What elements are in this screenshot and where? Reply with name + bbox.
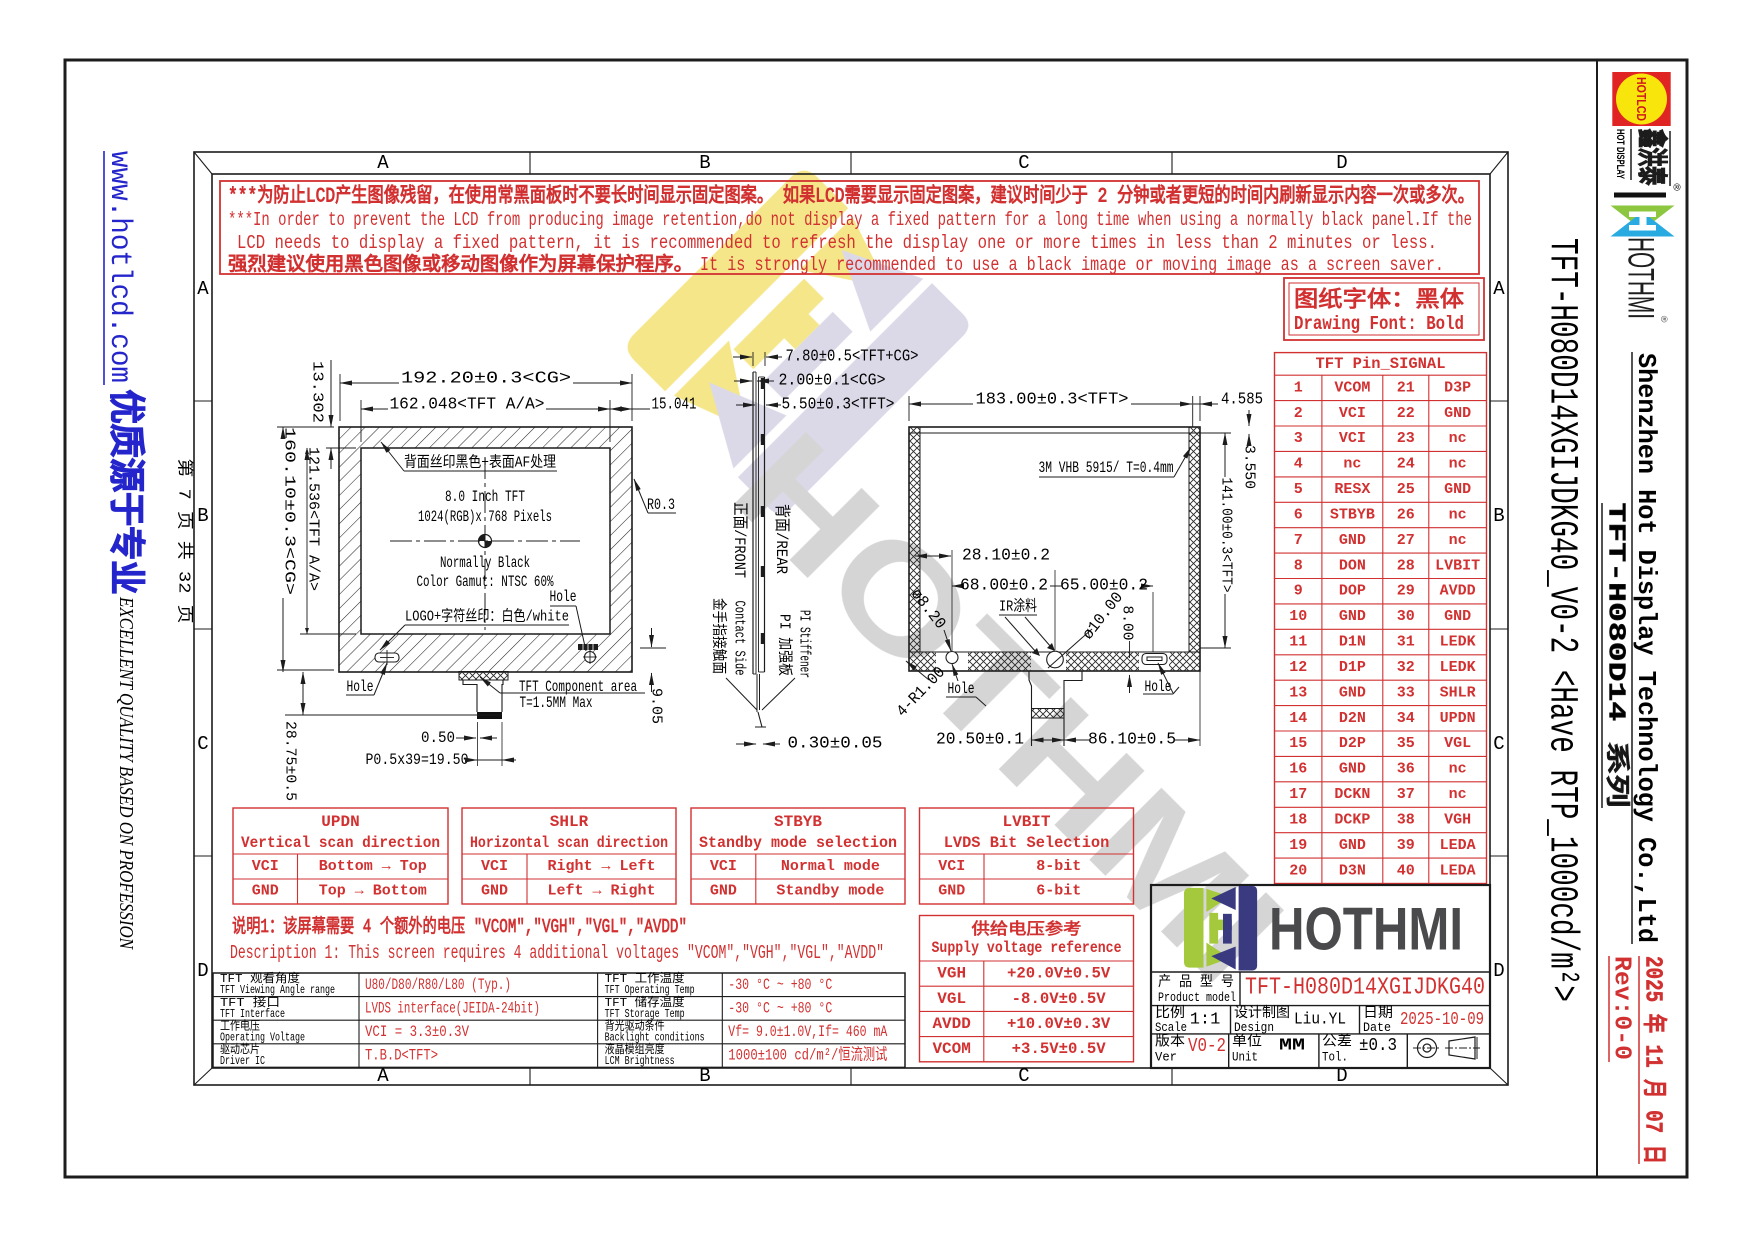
svg-text:Tol.: Tol. [1322, 1050, 1348, 1065]
svg-text:D: D [197, 960, 208, 982]
svg-text:1024(RGB)x 768 Pixels: 1024(RGB)x 768 Pixels [418, 508, 552, 526]
svg-text:Standby mode selection: Standby mode selection [699, 834, 897, 852]
svg-text:TFT Pin_SIGNAL: TFT Pin_SIGNAL [1316, 355, 1446, 373]
svg-text:It is strongly recommended to: It is strongly recommended to use a blac… [700, 254, 1444, 276]
svg-text:23: 23 [1397, 430, 1415, 447]
svg-text:27: 27 [1397, 532, 1415, 549]
svg-text:LOGO+字符丝印：白色/white: LOGO+字符丝印：白色/white [405, 608, 569, 626]
svg-text:TFT-H080D14XGIJDKG40: TFT-H080D14XGIJDKG40 [1245, 975, 1485, 1002]
svg-text:9.05: 9.05 [648, 688, 665, 724]
svg-text:28: 28 [1397, 557, 1415, 574]
svg-text:LVDS Bit Selection: LVDS Bit Selection [944, 834, 1110, 852]
svg-text:Shenzhen Hot Display Technolog: Shenzhen Hot Display Technology Co.,Ltd [1631, 353, 1661, 943]
svg-text:C: C [197, 733, 208, 755]
svg-text:UPDN: UPDN [321, 813, 359, 831]
svg-text:10: 10 [1289, 608, 1307, 625]
svg-text:单位: 单位 [1232, 1034, 1262, 1051]
svg-text:VCOM: VCOM [932, 1040, 970, 1058]
svg-text:13: 13 [1289, 684, 1307, 701]
svg-text:STBYB: STBYB [1330, 506, 1375, 523]
svg-text:VCI: VCI [1339, 405, 1366, 422]
svg-text:C: C [1018, 1065, 1029, 1087]
svg-text:160.10±0.3<CG>: 160.10±0.3<CG> [281, 427, 298, 595]
svg-text:D2N: D2N [1339, 710, 1366, 727]
svg-text:1: 1 [1294, 379, 1303, 396]
svg-text:Normally Black: Normally Black [440, 554, 530, 572]
svg-text:4: 4 [1294, 456, 1303, 473]
svg-text:A: A [197, 278, 209, 300]
svg-text:***In order to prevent the LCD: ***In order to prevent the LCD from prod… [228, 209, 1472, 231]
svg-text:D3N: D3N [1339, 862, 1366, 879]
svg-text:D3P: D3P [1444, 379, 1471, 396]
svg-text:背面丝印黑色+表面AF处理: 背面丝印黑色+表面AF处理 [404, 454, 556, 472]
svg-text:14: 14 [1289, 710, 1307, 727]
svg-text:3M VHB 5915/ T=0.4mm: 3M VHB 5915/ T=0.4mm [1039, 459, 1174, 477]
svg-text:®: ® [1671, 183, 1682, 191]
svg-text:VGH: VGH [1444, 811, 1471, 828]
svg-text:28.75±0.5: 28.75±0.5 [282, 721, 299, 801]
svg-text:C: C [1018, 152, 1029, 174]
svg-text:VCOM: VCOM [1334, 379, 1370, 396]
svg-text:Scale: Scale [1155, 1020, 1187, 1035]
svg-text:强烈建议使用黑色图像或移动图像作为屏幕保护程序。: 强烈建议使用黑色图像或移动图像作为屏幕保护程序。 [228, 253, 693, 276]
svg-text:背面/REAR: 背面/REAR [772, 504, 791, 574]
svg-text:GND: GND [481, 883, 508, 900]
svg-text:DON: DON [1339, 557, 1366, 574]
svg-text:Drawing Font: Bold: Drawing Font: Bold [1294, 313, 1464, 335]
svg-text:65.00±0.2: 65.00±0.2 [1060, 577, 1148, 596]
svg-text:Ver: Ver [1155, 1050, 1177, 1065]
svg-text:LVDS interface(JEIDA-24bit): LVDS interface(JEIDA-24bit) [365, 999, 540, 1017]
svg-text:HOTHMI: HOTHMI [1269, 896, 1463, 963]
svg-text:版本: 版本 [1155, 1034, 1185, 1051]
svg-text:第 7 页 共 32 页: 第 7 页 共 32 页 [174, 459, 195, 624]
svg-text:-30 °C ~ +80 °C: -30 °C ~ +80 °C [728, 999, 832, 1017]
svg-text:TFT-H080D14XGIJDKG40_V0-2 <Hav: TFT-H080D14XGIJDKG40_V0-2 <Have RTP_1000… [1539, 238, 1584, 1002]
svg-text:金手指接触面: 金手指接触面 [710, 598, 728, 674]
svg-text:GND: GND [1339, 761, 1366, 778]
svg-text:Liu.YL: Liu.YL [1294, 1011, 1346, 1030]
svg-text:162.048<TFT A/A>: 162.048<TFT A/A> [390, 396, 545, 415]
svg-text:Vf= 9.0±1.0V,If= 460 mA: Vf= 9.0±1.0V,If= 460 mA [728, 1023, 887, 1041]
svg-text:2025-10-09: 2025-10-09 [1400, 1010, 1484, 1030]
svg-text:SHLR: SHLR [550, 813, 589, 831]
svg-text:Driver IC: Driver IC [220, 1054, 265, 1068]
svg-text:T.B.D<TFT>: T.B.D<TFT> [365, 1047, 438, 1065]
svg-text:nc: nc [1449, 506, 1467, 523]
svg-text:33: 33 [1397, 684, 1415, 701]
svg-text:EXCELLENT QUALITY BASED ON PRO: EXCELLENT QUALITY BASED ON PROFESSION [115, 596, 137, 950]
svg-text:***为防止LCD产生图像残留，在使用常黑面板时不要长时间显: ***为防止LCD产生图像残留，在使用常黑面板时不要长时间显示固定图案。 如果L… [228, 184, 1474, 209]
svg-text:B: B [699, 152, 710, 174]
svg-text:35: 35 [1397, 735, 1415, 752]
svg-text:GND: GND [1339, 608, 1366, 625]
svg-text:22: 22 [1397, 405, 1415, 422]
svg-text:LEDK: LEDK [1440, 634, 1476, 651]
svg-text:121.536<TFT A/A>: 121.536<TFT A/A> [305, 447, 322, 591]
svg-text:D1N: D1N [1339, 634, 1366, 651]
svg-text:1:1: 1:1 [1190, 1011, 1221, 1030]
svg-text:29: 29 [1397, 583, 1415, 600]
svg-text:STBYB: STBYB [774, 813, 822, 831]
svg-text:40: 40 [1397, 862, 1415, 879]
svg-text:VGL: VGL [937, 990, 966, 1008]
svg-text:GND: GND [938, 883, 965, 900]
svg-text:VCI = 3.3±0.3V: VCI = 3.3±0.3V [365, 1023, 469, 1041]
svg-text:Left → Right: Left → Right [547, 883, 655, 900]
svg-text:13.302: 13.302 [309, 361, 326, 423]
svg-text:19: 19 [1289, 837, 1307, 854]
svg-text:www.hotlcd.com: www.hotlcd.com [102, 151, 136, 383]
svg-text:B: B [1493, 505, 1504, 527]
svg-text:31: 31 [1397, 634, 1415, 651]
svg-text:8-bit: 8-bit [1036, 858, 1081, 875]
svg-text:1000±100 cd/m²/恒流测试: 1000±100 cd/m²/恒流测试 [728, 1046, 887, 1065]
svg-text:-8.0V±0.5V: -8.0V±0.5V [1012, 990, 1106, 1008]
svg-text:LCM Brightness: LCM Brightness [605, 1054, 675, 1068]
svg-text:Color Gamut: NTSC 60%: Color Gamut: NTSC 60% [417, 573, 554, 591]
svg-text:15.041: 15.041 [652, 396, 697, 415]
svg-text:®: ® [1659, 316, 1669, 323]
svg-text:LVBIT: LVBIT [1435, 557, 1480, 574]
svg-text:LEDA: LEDA [1440, 862, 1476, 879]
svg-text:Horizontal scan direction: Horizontal scan direction [470, 834, 668, 852]
svg-text:nc: nc [1449, 532, 1467, 549]
svg-text:26: 26 [1397, 506, 1415, 523]
svg-text:86.10±0.5: 86.10±0.5 [1088, 731, 1176, 750]
svg-text:Date: Date [1363, 1020, 1391, 1035]
svg-text:+20.0V±0.5V: +20.0V±0.5V [1007, 965, 1111, 983]
svg-text:图纸字体：黑体: 图纸字体：黑体 [1294, 288, 1464, 314]
svg-text:4.585: 4.585 [1221, 391, 1263, 410]
svg-text:34: 34 [1397, 710, 1415, 727]
svg-text:39: 39 [1397, 837, 1415, 854]
svg-text:VCI: VCI [1339, 430, 1366, 447]
svg-text:20: 20 [1289, 862, 1307, 879]
svg-text:LEDA: LEDA [1440, 837, 1476, 854]
svg-text:0.30±0.05: 0.30±0.05 [788, 735, 883, 754]
svg-text:6: 6 [1294, 506, 1303, 523]
svg-text:公差: 公差 [1322, 1034, 1352, 1051]
svg-text:8: 8 [1294, 557, 1303, 574]
svg-text:LVBIT: LVBIT [1002, 813, 1050, 831]
svg-text:36: 36 [1397, 761, 1415, 778]
svg-text:GND: GND [1339, 532, 1366, 549]
svg-text:25: 25 [1397, 481, 1415, 498]
svg-text:GND: GND [1339, 684, 1366, 701]
svg-text:21: 21 [1397, 379, 1415, 396]
svg-text:nc: nc [1449, 761, 1467, 778]
svg-text:VCI: VCI [938, 858, 965, 875]
svg-text:24: 24 [1397, 456, 1415, 473]
svg-text:-30 °C ~ +80 °C: -30 °C ~ +80 °C [728, 976, 832, 994]
svg-text:Standby mode: Standby mode [776, 883, 884, 900]
svg-text:D1P: D1P [1339, 659, 1366, 676]
svg-text:优质源于专业: 优质源于专业 [107, 390, 148, 595]
svg-text:GND: GND [1444, 481, 1471, 498]
svg-text:17: 17 [1289, 786, 1307, 803]
svg-text:12: 12 [1289, 659, 1307, 676]
svg-text:AVDD: AVDD [932, 1015, 970, 1033]
svg-text:IR涂料: IR涂料 [999, 598, 1037, 616]
svg-text:+10.0V±0.3V: +10.0V±0.3V [1007, 1015, 1111, 1033]
svg-text:说明1：该屏幕需要 4 个额外的电压 "VCOM","VGH: 说明1：该屏幕需要 4 个额外的电压 "VCOM","VGH","VGL","A… [232, 915, 687, 938]
svg-text:0.50: 0.50 [421, 729, 455, 747]
svg-text:AVDD: AVDD [1440, 583, 1476, 600]
svg-text:B: B [197, 505, 208, 527]
svg-text:C: C [1493, 733, 1504, 755]
svg-text:5.50±0.3<TFT>: 5.50±0.3<TFT> [782, 396, 895, 415]
svg-text:TFT-H080D14 系列: TFT-H080D14 系列 [1602, 503, 1631, 808]
svg-text:产 品 型 号: 产 品 型 号 [1158, 974, 1234, 991]
svg-text:9: 9 [1294, 583, 1303, 600]
svg-text:DCKN: DCKN [1334, 786, 1370, 803]
svg-text:Hole: Hole [948, 680, 975, 698]
svg-text:D: D [1336, 152, 1347, 174]
svg-text:RESX: RESX [1334, 481, 1370, 498]
svg-text:7.80±0.5<TFT+CG>: 7.80±0.5<TFT+CG> [786, 348, 919, 367]
svg-text:37: 37 [1397, 786, 1415, 803]
svg-text:2025 年 11 月 07 日: 2025 年 11 月 07 日 [1639, 956, 1669, 1164]
svg-text:nc: nc [1343, 456, 1361, 473]
svg-text:3: 3 [1294, 430, 1303, 447]
svg-text:Hole: Hole [1145, 678, 1172, 696]
svg-text:2.00±0.1<CG>: 2.00±0.1<CG> [779, 372, 886, 391]
svg-text:D2P: D2P [1339, 735, 1366, 752]
svg-text:8.0 Inch TFT: 8.0 Inch TFT [445, 488, 525, 506]
svg-text:7: 7 [1294, 532, 1303, 549]
svg-text:UPDN: UPDN [1440, 710, 1476, 727]
svg-text:HOTHMI: HOTHMI [1621, 237, 1662, 319]
svg-text:Hole: Hole [347, 678, 374, 696]
svg-text:183.00±0.3<TFT>: 183.00±0.3<TFT> [976, 391, 1129, 410]
svg-text:Product model: Product model [1158, 990, 1236, 1005]
svg-text:正面/FRONT: 正面/FRONT [730, 502, 748, 578]
svg-text:VCI: VCI [710, 858, 737, 875]
svg-text:18: 18 [1289, 811, 1307, 828]
svg-text:A: A [377, 1065, 389, 1087]
svg-text:11: 11 [1289, 634, 1307, 651]
svg-text:VGL: VGL [1444, 735, 1471, 752]
svg-text:38: 38 [1397, 811, 1415, 828]
svg-text:Supply voltage reference: Supply voltage reference [932, 939, 1122, 957]
svg-text:MM: MM [1279, 1037, 1305, 1056]
svg-text:15: 15 [1289, 735, 1307, 752]
svg-text:LCD needs to display a fixed p: LCD needs to display a fixed pattern, it… [237, 232, 1437, 254]
svg-text:DOP: DOP [1339, 583, 1366, 600]
svg-text:GND: GND [252, 883, 279, 900]
svg-text:8.00: 8.00 [1119, 606, 1136, 641]
svg-text:Bottom → Top: Bottom → Top [319, 858, 427, 875]
svg-text:5: 5 [1294, 481, 1303, 498]
svg-text:VGH: VGH [937, 965, 966, 983]
svg-text:供给电压参考: 供给电压参考 [970, 919, 1081, 939]
svg-text:HOTLCD: HOTLCD [1634, 77, 1649, 121]
svg-text:nc: nc [1449, 430, 1467, 447]
svg-text:A: A [1493, 278, 1505, 300]
svg-text:HOT DISPLAY: HOT DISPLAY [1614, 129, 1626, 179]
svg-text:Top → Bottom: Top → Bottom [319, 883, 427, 900]
svg-text:2: 2 [1294, 405, 1303, 422]
svg-text:Design: Design [1234, 1020, 1274, 1035]
svg-text:GND: GND [1444, 608, 1471, 625]
svg-text:141.00±0.3<TFT>: 141.00±0.3<TFT> [1218, 478, 1235, 593]
svg-text:U80/D80/R80/L80 (Typ.): U80/D80/R80/L80 (Typ.) [365, 976, 511, 994]
svg-text:Hole: Hole [550, 588, 577, 606]
svg-text:Right → Left: Right → Left [547, 858, 655, 875]
svg-text:Vertical scan direction: Vertical scan direction [241, 834, 440, 852]
svg-text:P0.5x39=19.50: P0.5x39=19.50 [366, 751, 469, 769]
svg-text:VCI: VCI [481, 858, 508, 875]
svg-text:V0-2: V0-2 [1188, 1035, 1226, 1057]
svg-text:GND: GND [1444, 405, 1471, 422]
svg-text:D: D [1493, 960, 1504, 982]
svg-text:16: 16 [1289, 761, 1307, 778]
svg-text:±0.3: ±0.3 [1359, 1036, 1397, 1056]
svg-text:Description 1: This screen req: Description 1: This screen requires 4 ad… [230, 942, 884, 964]
svg-text:28.10±0.2: 28.10±0.2 [962, 547, 1050, 566]
svg-text:Rev:0-0: Rev:0-0 [1608, 956, 1635, 1060]
svg-text:DCKP: DCKP [1334, 811, 1370, 828]
svg-text:68.00±0.2: 68.00±0.2 [960, 577, 1048, 596]
svg-text:VCI: VCI [252, 858, 279, 875]
svg-text:鑫洪泰: 鑫洪泰 [1635, 129, 1669, 186]
svg-text:3.550: 3.550 [1241, 445, 1258, 489]
svg-text:32: 32 [1397, 659, 1415, 676]
svg-text:6-bit: 6-bit [1036, 883, 1081, 900]
svg-text:LEDK: LEDK [1440, 659, 1476, 676]
svg-text:+3.5V±0.5V: +3.5V±0.5V [1012, 1040, 1106, 1058]
svg-text:PI Stiffener: PI Stiffener [796, 610, 813, 678]
svg-text:SHLR: SHLR [1440, 684, 1476, 701]
svg-text:30: 30 [1397, 608, 1415, 625]
svg-text:PI 加强板: PI 加强板 [776, 614, 795, 676]
svg-text:20.50±0.1: 20.50±0.1 [936, 731, 1024, 750]
svg-text:R0.3: R0.3 [647, 496, 675, 514]
svg-text:nc: nc [1449, 456, 1467, 473]
svg-text:Normal mode: Normal mode [781, 858, 880, 875]
svg-text:Contact Side: Contact Side [731, 601, 748, 676]
svg-text:192.20±0.3<CG>: 192.20±0.3<CG> [401, 370, 571, 389]
svg-text:A: A [377, 152, 389, 174]
svg-text:Unit: Unit [1232, 1050, 1258, 1065]
svg-text:nc: nc [1449, 786, 1467, 803]
svg-text:GND: GND [1339, 837, 1366, 854]
svg-text:GND: GND [710, 883, 737, 900]
svg-text:B: B [699, 1065, 710, 1087]
svg-text:T=1.5MM Max: T=1.5MM Max [520, 694, 593, 712]
